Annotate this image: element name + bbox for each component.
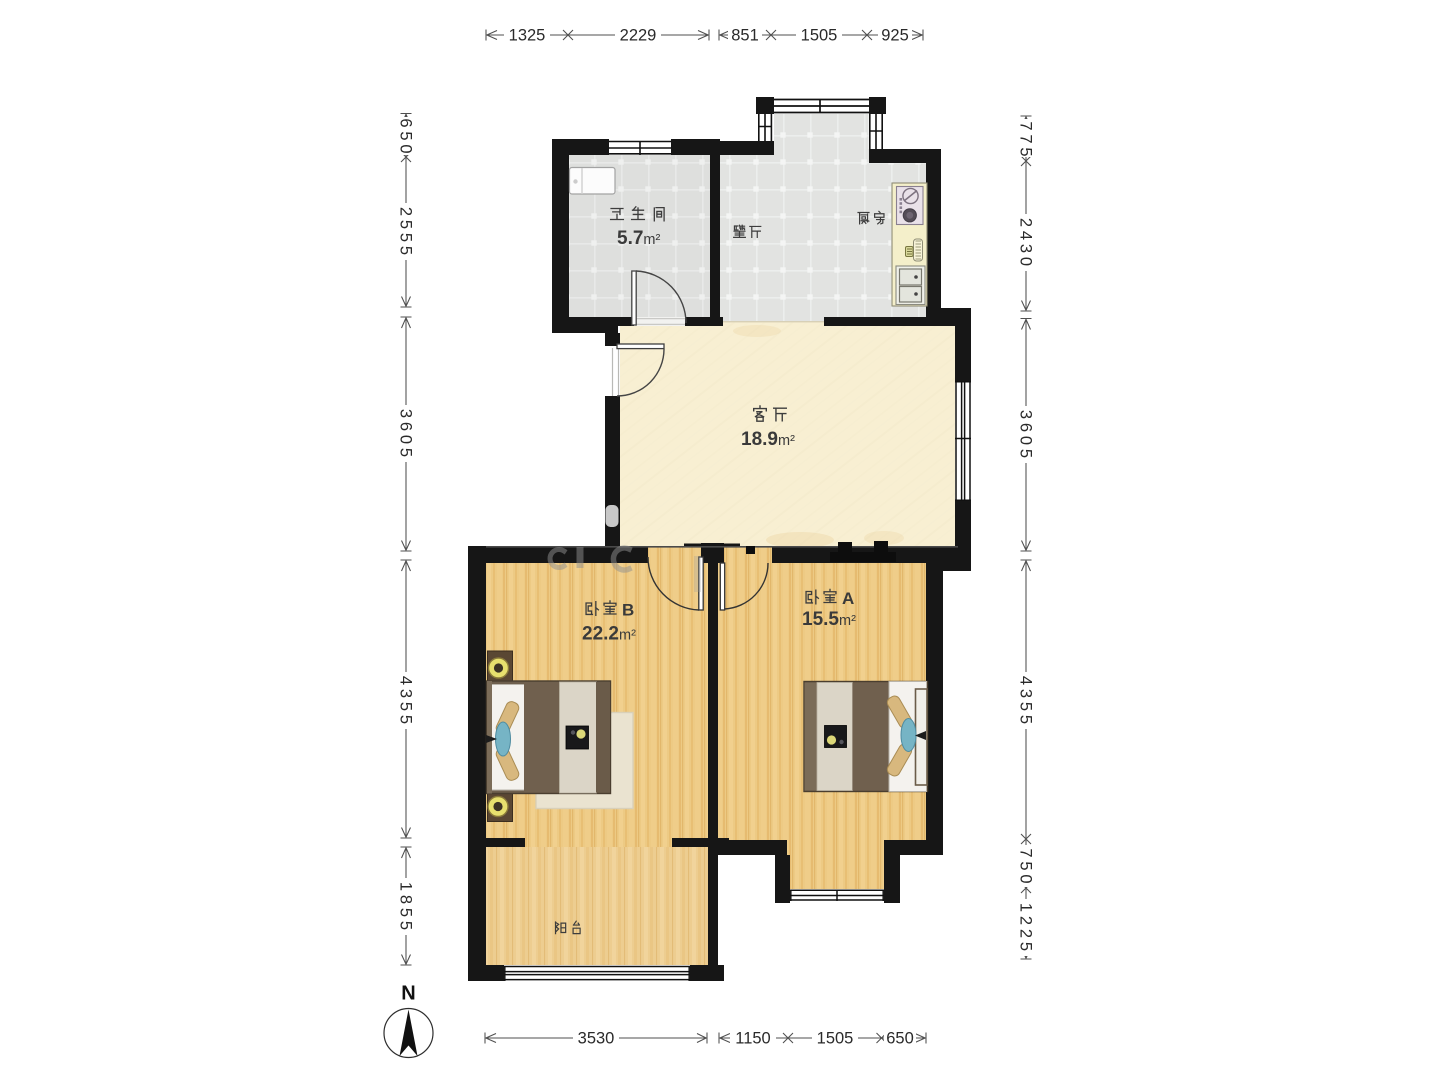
svg-text:2229: 2229 <box>620 27 657 45</box>
svg-text:5.7m²: 5.7m² <box>617 228 661 249</box>
svg-text:5: 5 <box>397 921 415 930</box>
svg-text:5: 5 <box>1017 715 1035 724</box>
svg-text:650: 650 <box>886 1030 914 1048</box>
svg-text:3: 3 <box>397 409 415 418</box>
svg-text:3: 3 <box>1017 410 1035 419</box>
svg-text:6: 6 <box>397 118 415 127</box>
svg-text:5: 5 <box>1017 147 1035 156</box>
svg-text:5: 5 <box>397 702 415 711</box>
svg-text:3: 3 <box>397 689 415 698</box>
svg-text:3: 3 <box>1017 244 1035 253</box>
svg-text:2: 2 <box>1017 929 1035 938</box>
svg-text:3530: 3530 <box>578 1030 615 1048</box>
svg-text:7: 7 <box>1017 121 1035 130</box>
svg-text:0: 0 <box>1017 257 1035 266</box>
svg-text:1325: 1325 <box>509 27 546 45</box>
svg-text:A: A <box>842 589 854 608</box>
svg-text:0: 0 <box>397 435 415 444</box>
svg-text:0: 0 <box>397 144 415 153</box>
svg-text:4: 4 <box>1017 676 1035 685</box>
svg-text:5: 5 <box>1017 702 1035 711</box>
svg-text:1150: 1150 <box>735 1030 770 1048</box>
svg-text:0: 0 <box>1017 436 1035 445</box>
svg-text:15.5m²: 15.5m² <box>802 609 856 630</box>
svg-text:5: 5 <box>397 448 415 457</box>
svg-text:5: 5 <box>397 220 415 229</box>
svg-text:1: 1 <box>397 882 415 891</box>
svg-text:1: 1 <box>1017 903 1035 912</box>
svg-text:5: 5 <box>1017 861 1035 870</box>
svg-text:6: 6 <box>1017 423 1035 432</box>
svg-text:851: 851 <box>731 27 759 45</box>
svg-text:7: 7 <box>1017 848 1035 857</box>
svg-text:22.2m²: 22.2m² <box>582 624 636 645</box>
svg-text:8: 8 <box>397 895 415 904</box>
svg-text:1505: 1505 <box>817 1030 854 1048</box>
svg-text:925: 925 <box>881 27 909 45</box>
svg-text:6: 6 <box>397 422 415 431</box>
svg-text:4: 4 <box>397 676 415 685</box>
svg-text:4: 4 <box>1017 231 1035 240</box>
svg-text:0: 0 <box>1017 874 1035 883</box>
svg-text:7: 7 <box>1017 134 1035 143</box>
svg-text:2: 2 <box>397 207 415 216</box>
svg-text:B: B <box>622 601 634 620</box>
svg-text:5: 5 <box>397 131 415 140</box>
svg-text:5: 5 <box>1017 449 1035 458</box>
svg-text:5: 5 <box>397 715 415 724</box>
svg-text:2: 2 <box>1017 916 1035 925</box>
svg-text:3: 3 <box>1017 689 1035 698</box>
svg-text:5: 5 <box>397 233 415 242</box>
svg-text:18.9m²: 18.9m² <box>741 429 795 450</box>
svg-text:5: 5 <box>397 246 415 255</box>
svg-text:5: 5 <box>397 908 415 917</box>
svg-text:5: 5 <box>1017 942 1035 951</box>
svg-text:N: N <box>401 983 415 1005</box>
svg-text:2: 2 <box>1017 218 1035 227</box>
svg-text:1505: 1505 <box>801 27 838 45</box>
